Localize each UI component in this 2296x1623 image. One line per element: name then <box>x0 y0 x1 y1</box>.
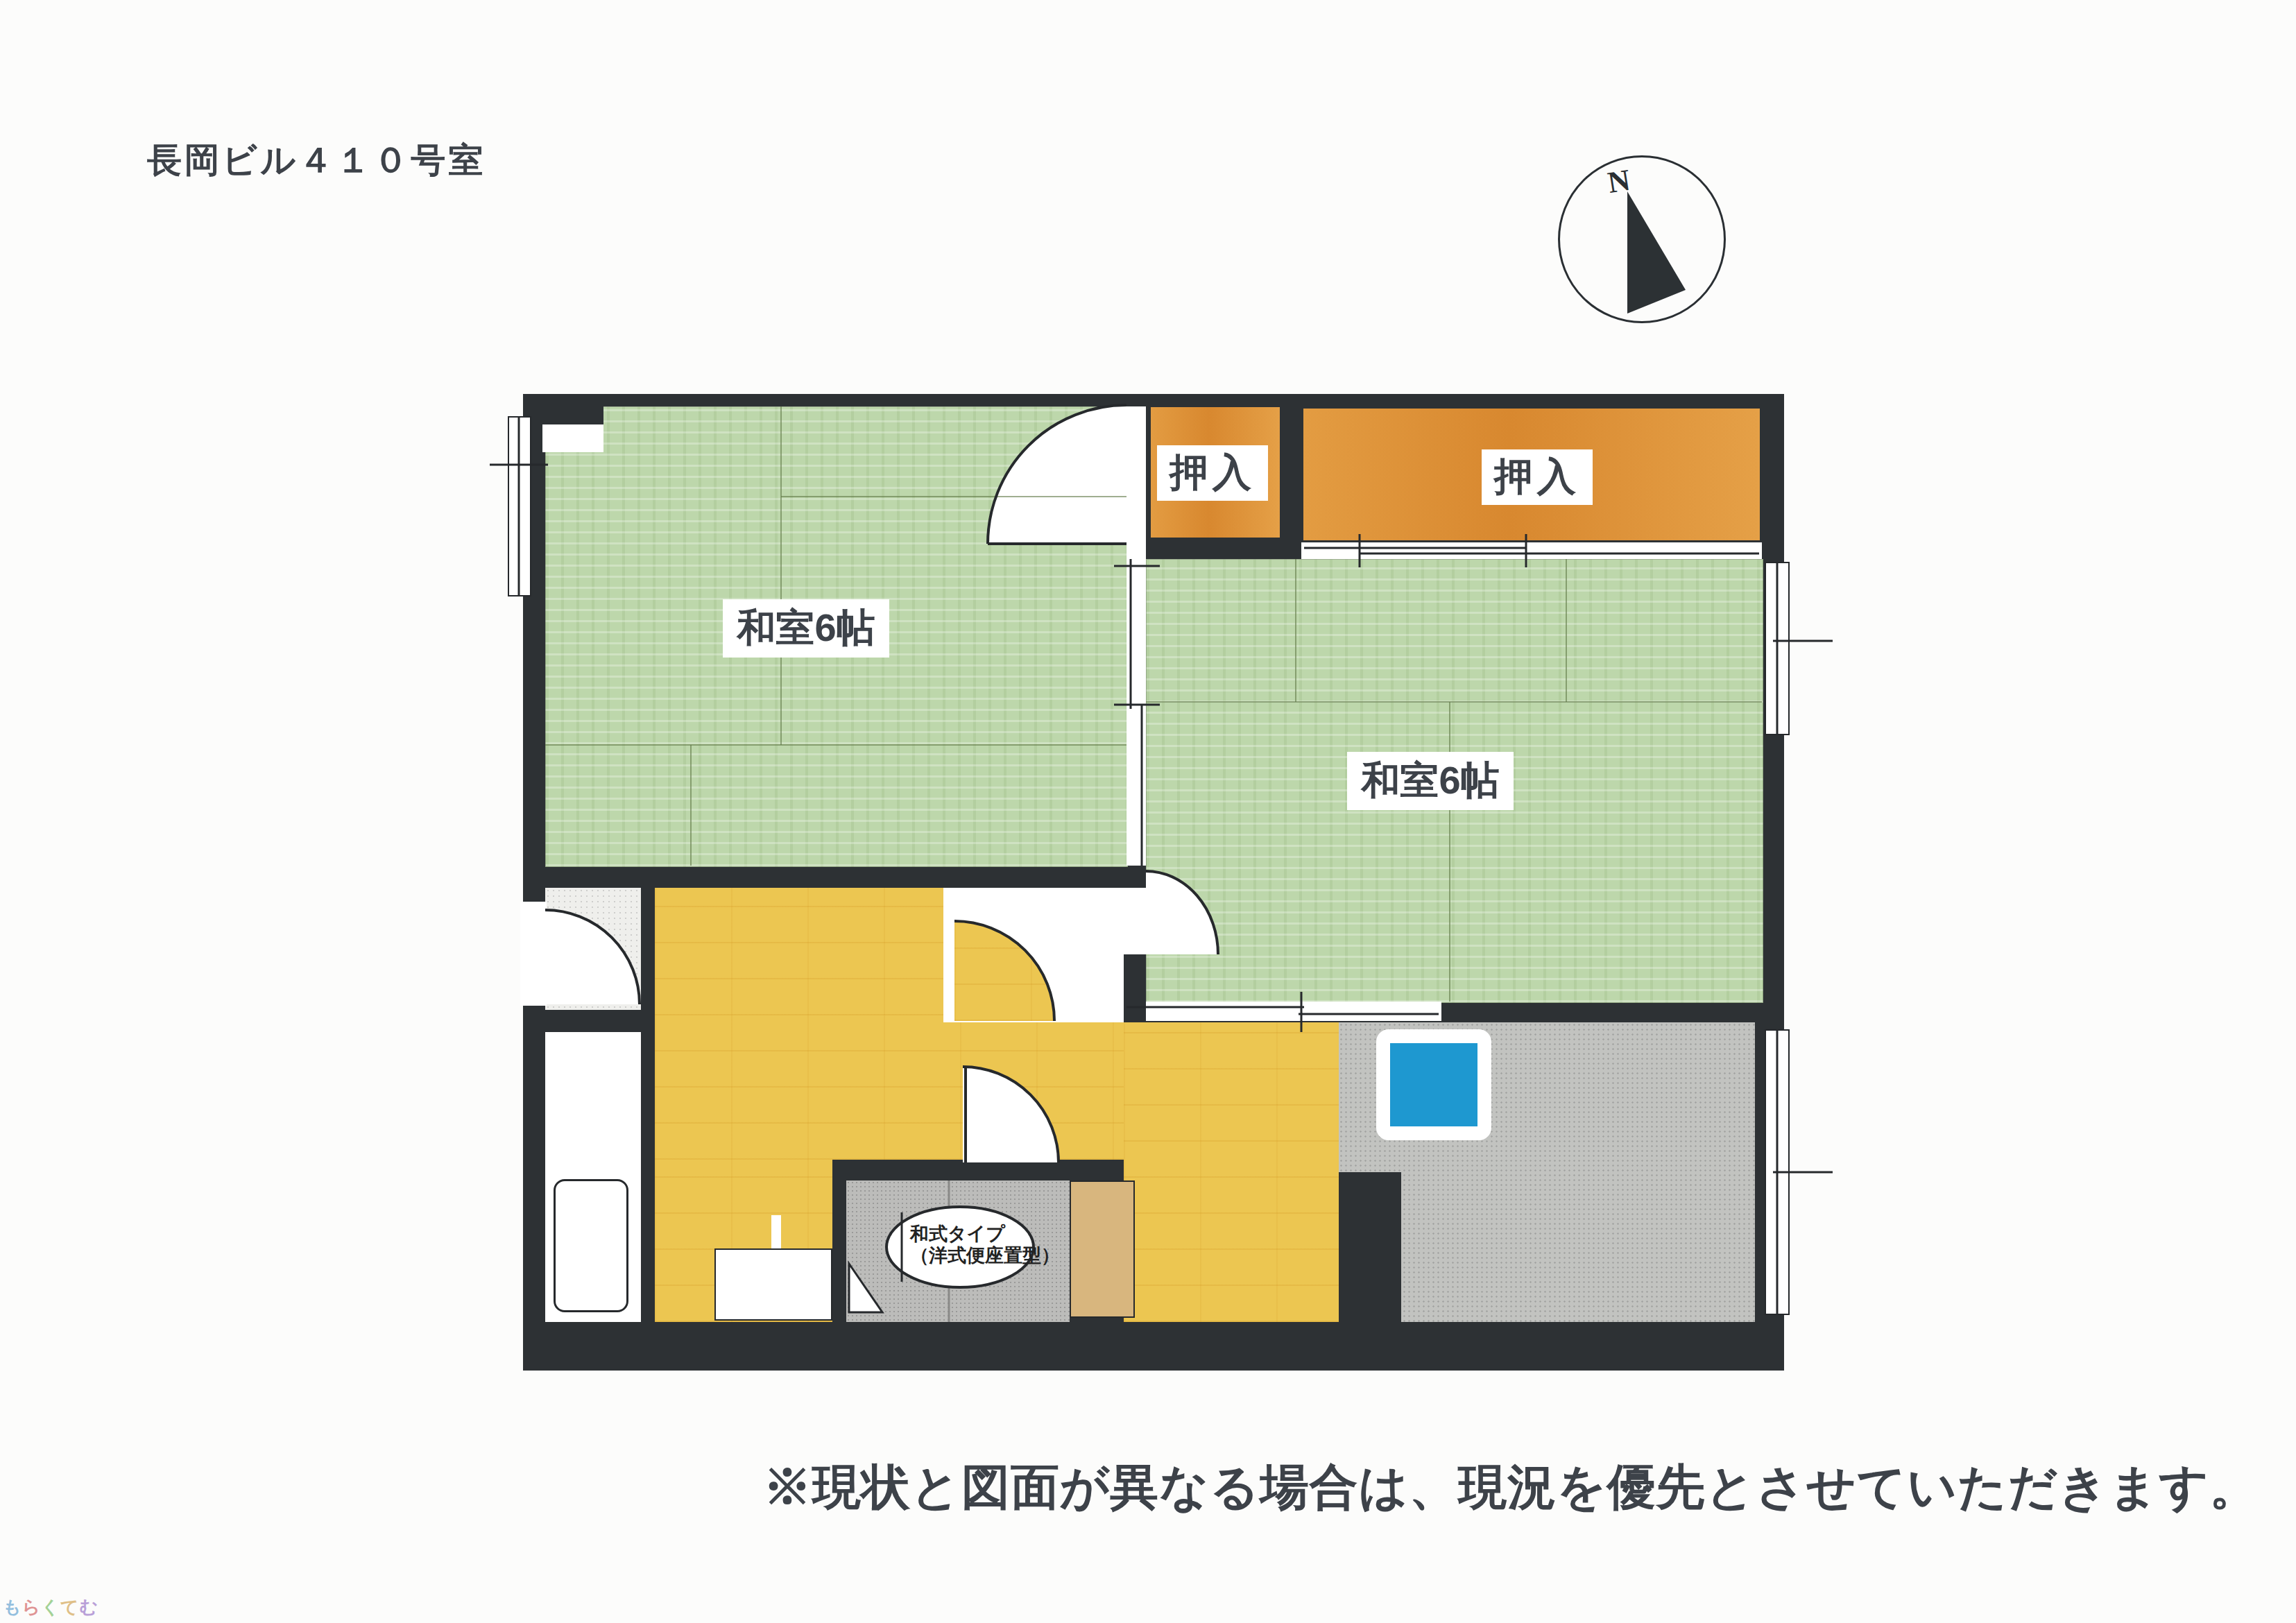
watermark-char: む <box>79 1597 98 1617</box>
room2-sliding-track <box>1124 1002 1441 1021</box>
toilet-note-line1: 和式タイプ <box>910 1223 1060 1245</box>
fusuma-partition <box>1126 559 1146 866</box>
kitchen-sink <box>1390 1043 1477 1126</box>
room-label-left: 和室6帖 <box>723 599 889 658</box>
kitchen-floor-right <box>1124 1022 1339 1322</box>
watermark-char: も <box>3 1597 22 1617</box>
toilet-sliding-door <box>1070 1180 1135 1318</box>
toilet-note-line2: （洋式便座置型） <box>910 1245 1060 1266</box>
partition-upper <box>1126 406 1146 559</box>
room-label-right: 和室6帖 <box>1347 752 1514 810</box>
watermark-char: て <box>60 1597 80 1617</box>
wall-corner-notch <box>542 424 603 452</box>
window-right-upper <box>1765 562 1790 735</box>
closet-label-left: 押入 <box>1157 445 1268 501</box>
closet-label-right: 押入 <box>1482 449 1593 505</box>
wall-corner-step <box>523 394 603 424</box>
wall-post <box>1124 954 1146 1022</box>
watermark: もらくてむ <box>3 1595 98 1620</box>
wall-step <box>1339 1172 1401 1322</box>
counter-box <box>714 1248 832 1321</box>
scanned-floorplan-page: 長岡ビル４１０号室 N <box>0 0 2296 1623</box>
page-title: 長岡ビル４１０号室 <box>147 137 486 184</box>
disclaimer-text: ※現状と図面が異なる場合は、現況を優先とさせていただきます。 <box>763 1455 2259 1520</box>
bathtub <box>554 1179 628 1312</box>
watermark-char: ら <box>22 1597 42 1617</box>
window-right-lower <box>1765 1029 1790 1315</box>
window-left <box>508 416 531 596</box>
closet-sliding-track <box>1301 542 1762 559</box>
entry-door-opening <box>520 902 547 1006</box>
compass <box>1558 155 1726 323</box>
watermark-char: く <box>41 1597 60 1617</box>
toilet-note: 和式タイプ （洋式便座置型） <box>910 1223 1060 1266</box>
hall-doorway-opening <box>1124 888 1146 954</box>
